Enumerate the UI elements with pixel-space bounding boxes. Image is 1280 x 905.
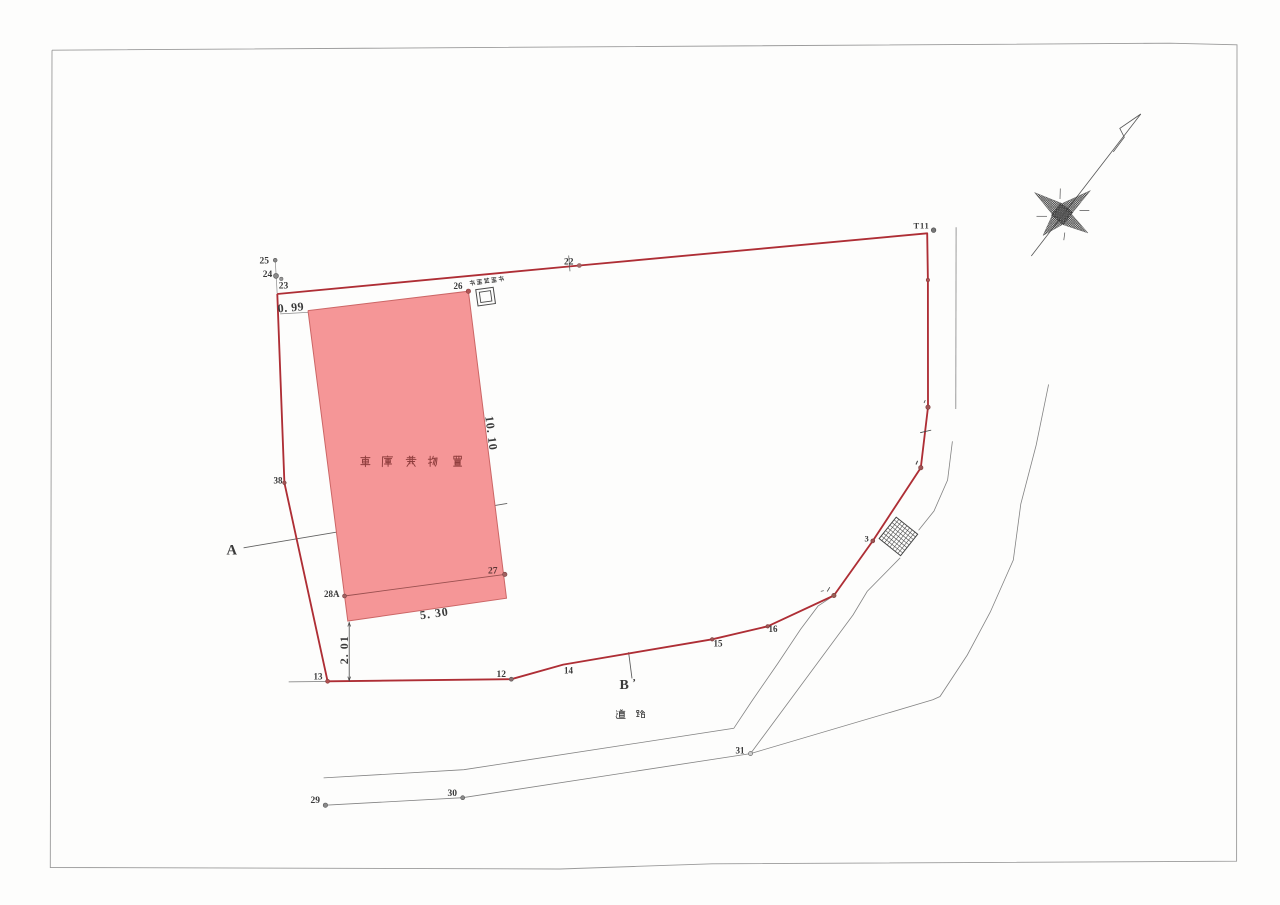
svg-text:26: 26: [454, 281, 464, 291]
svg-text:14: 14: [564, 665, 574, 675]
svg-text:B: B: [620, 678, 629, 693]
svg-text:27: 27: [488, 566, 498, 576]
svg-text:’: ’: [632, 677, 636, 689]
svg-text:0. 99: 0. 99: [277, 299, 305, 315]
svg-text:28A: 28A: [324, 589, 340, 599]
svg-text:2. 01: 2. 01: [337, 635, 351, 664]
svg-text:16: 16: [769, 624, 779, 634]
svg-text:22: 22: [564, 258, 574, 268]
svg-text:12: 12: [497, 670, 507, 680]
svg-text:3: 3: [865, 533, 869, 543]
svg-text:29: 29: [311, 796, 321, 806]
svg-text:23: 23: [279, 281, 289, 291]
svg-text:25: 25: [260, 256, 270, 266]
svg-text:38: 38: [274, 476, 284, 486]
svg-text:A: A: [227, 543, 238, 559]
svg-text:13: 13: [314, 671, 324, 681]
svg-text:31: 31: [736, 745, 746, 755]
svg-text:30: 30: [448, 789, 458, 799]
svg-text:T11: T11: [914, 220, 930, 230]
svg-text:24: 24: [263, 270, 273, 280]
svg-text:15: 15: [714, 638, 724, 648]
